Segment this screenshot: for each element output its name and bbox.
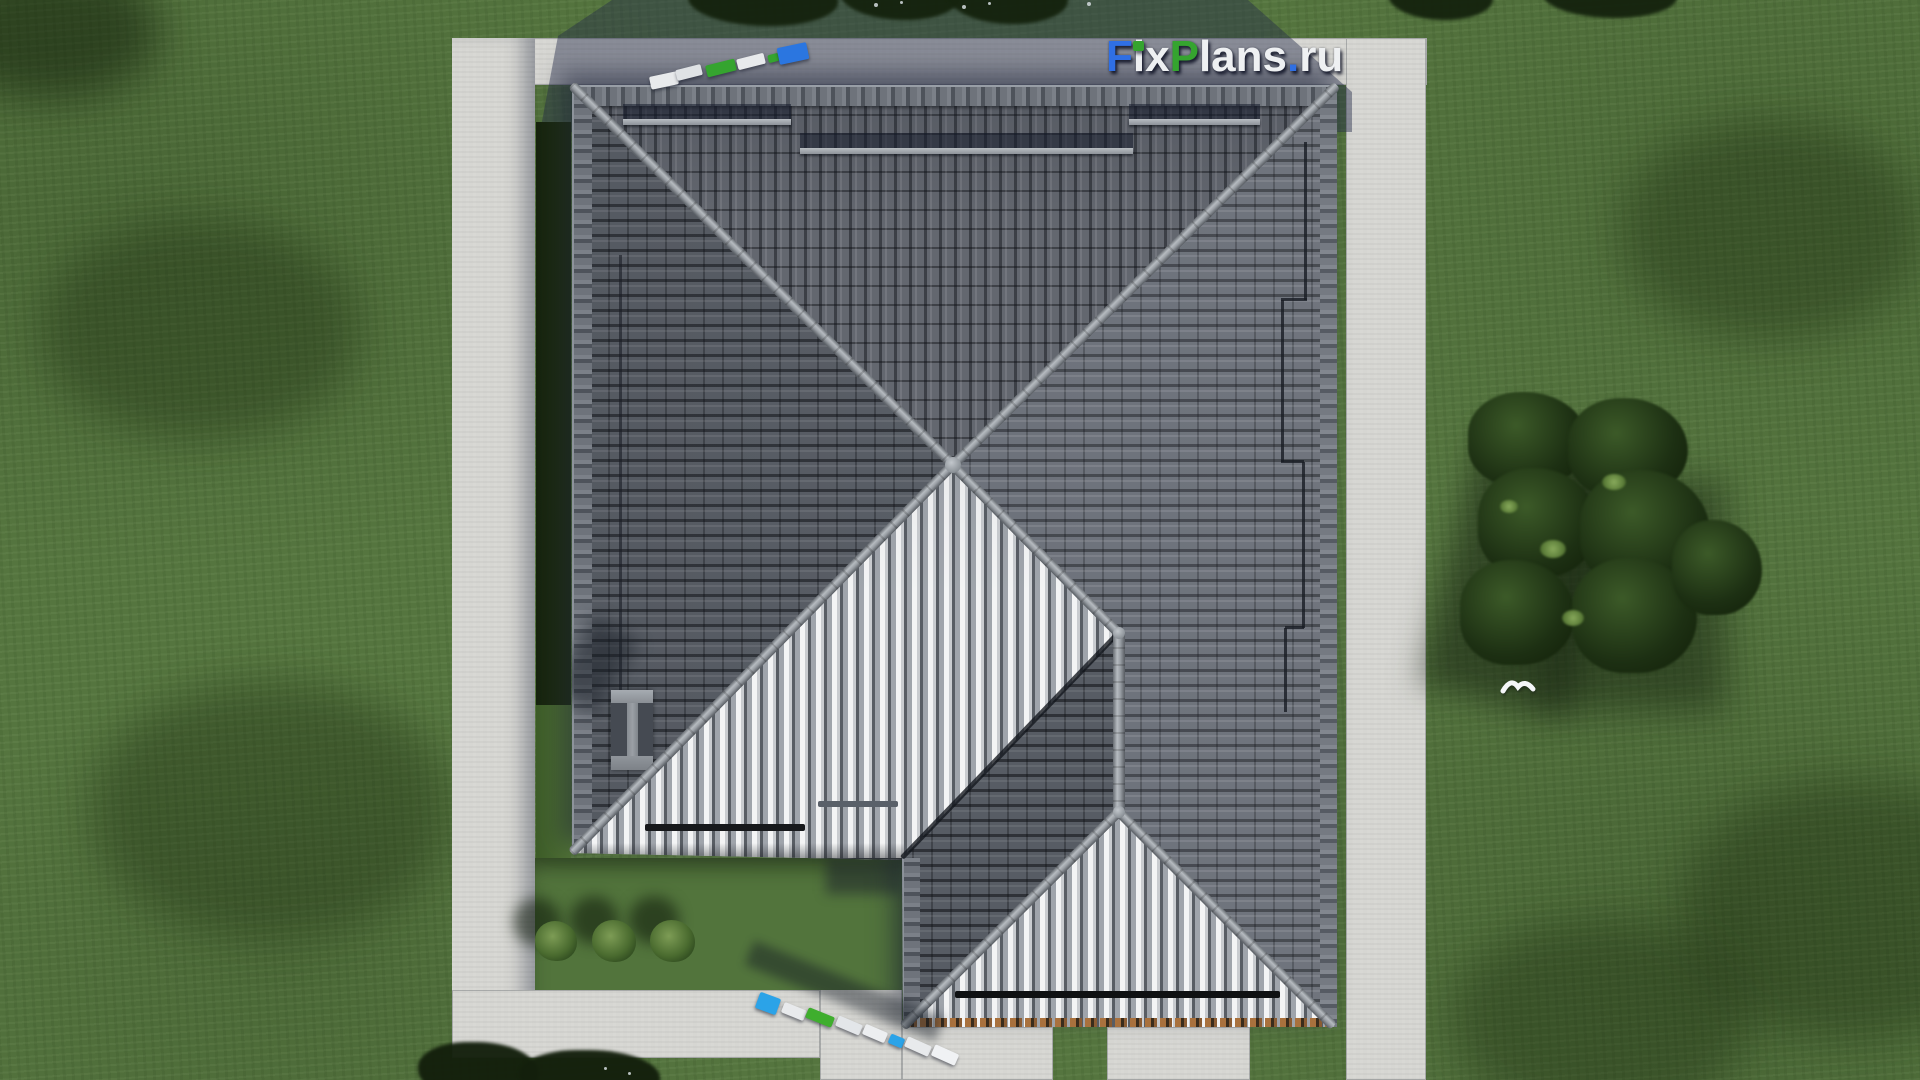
conductor-line-east — [1302, 462, 1305, 628]
white-speck — [1087, 2, 1091, 6]
conductor-jog — [1281, 298, 1307, 301]
snow-guard-shadow — [1129, 104, 1260, 120]
eave-south — [572, 843, 904, 861]
snow-guard-shadow — [800, 133, 1133, 149]
chimney-flue-divider — [627, 703, 638, 756]
roof-step-bar — [818, 801, 898, 807]
eave-top — [572, 85, 1337, 106]
white-speck — [604, 1067, 607, 1070]
tree-canopy — [1672, 520, 1762, 615]
ridge-joint-apex — [945, 457, 961, 473]
eave-left — [572, 85, 592, 853]
white-speck — [900, 1, 903, 4]
bird-icon — [1500, 674, 1536, 702]
ridge-joint-gable — [1113, 806, 1125, 818]
logo-i-dot-green — [1133, 41, 1144, 51]
white-speck — [962, 5, 966, 9]
conductor-line-east — [1304, 142, 1307, 300]
roof-access-bar — [645, 824, 805, 831]
conductor-line-east — [1281, 300, 1284, 462]
logo-letters-ix: ix — [1133, 32, 1170, 81]
white-speck — [628, 1072, 631, 1075]
snow-guard-bar — [623, 119, 791, 125]
conductor-line-east — [1284, 628, 1287, 712]
white-speck — [874, 3, 878, 7]
chimney-cap-top — [611, 690, 653, 703]
ridge-joint-tee — [1113, 627, 1125, 639]
conductor-line-west — [619, 255, 622, 690]
eave-batten-wood — [905, 1018, 1333, 1029]
chimney — [611, 690, 653, 770]
foliage-highlight — [1602, 474, 1626, 490]
foliage-highlight — [1500, 500, 1518, 513]
foliage-highlight — [1562, 610, 1584, 626]
logo-dot: . — [1287, 32, 1299, 81]
conductor-jog — [1281, 460, 1304, 463]
scene-aerial-render: FixPlans.ru — [0, 0, 1920, 1080]
ridge-cap-wing — [1113, 630, 1125, 814]
watermark-logo: FixPlans.ru — [1106, 32, 1343, 82]
logo-letter-f: F — [1106, 32, 1133, 81]
snow-guard-bar — [1129, 119, 1260, 125]
white-speck — [988, 2, 991, 5]
eave-right — [1320, 85, 1339, 1027]
foliage-highlight — [1540, 540, 1566, 558]
roof-access-bar — [955, 991, 1280, 998]
snow-guard-bar — [800, 148, 1133, 154]
tree-canopy — [1460, 560, 1575, 665]
conductor-jog — [1285, 626, 1304, 629]
logo-letters-lans: lans — [1199, 32, 1287, 81]
logo-letter-p: P — [1170, 32, 1199, 81]
snow-guard-shadow — [623, 104, 791, 120]
logo-letters-ru: ru — [1299, 32, 1343, 81]
